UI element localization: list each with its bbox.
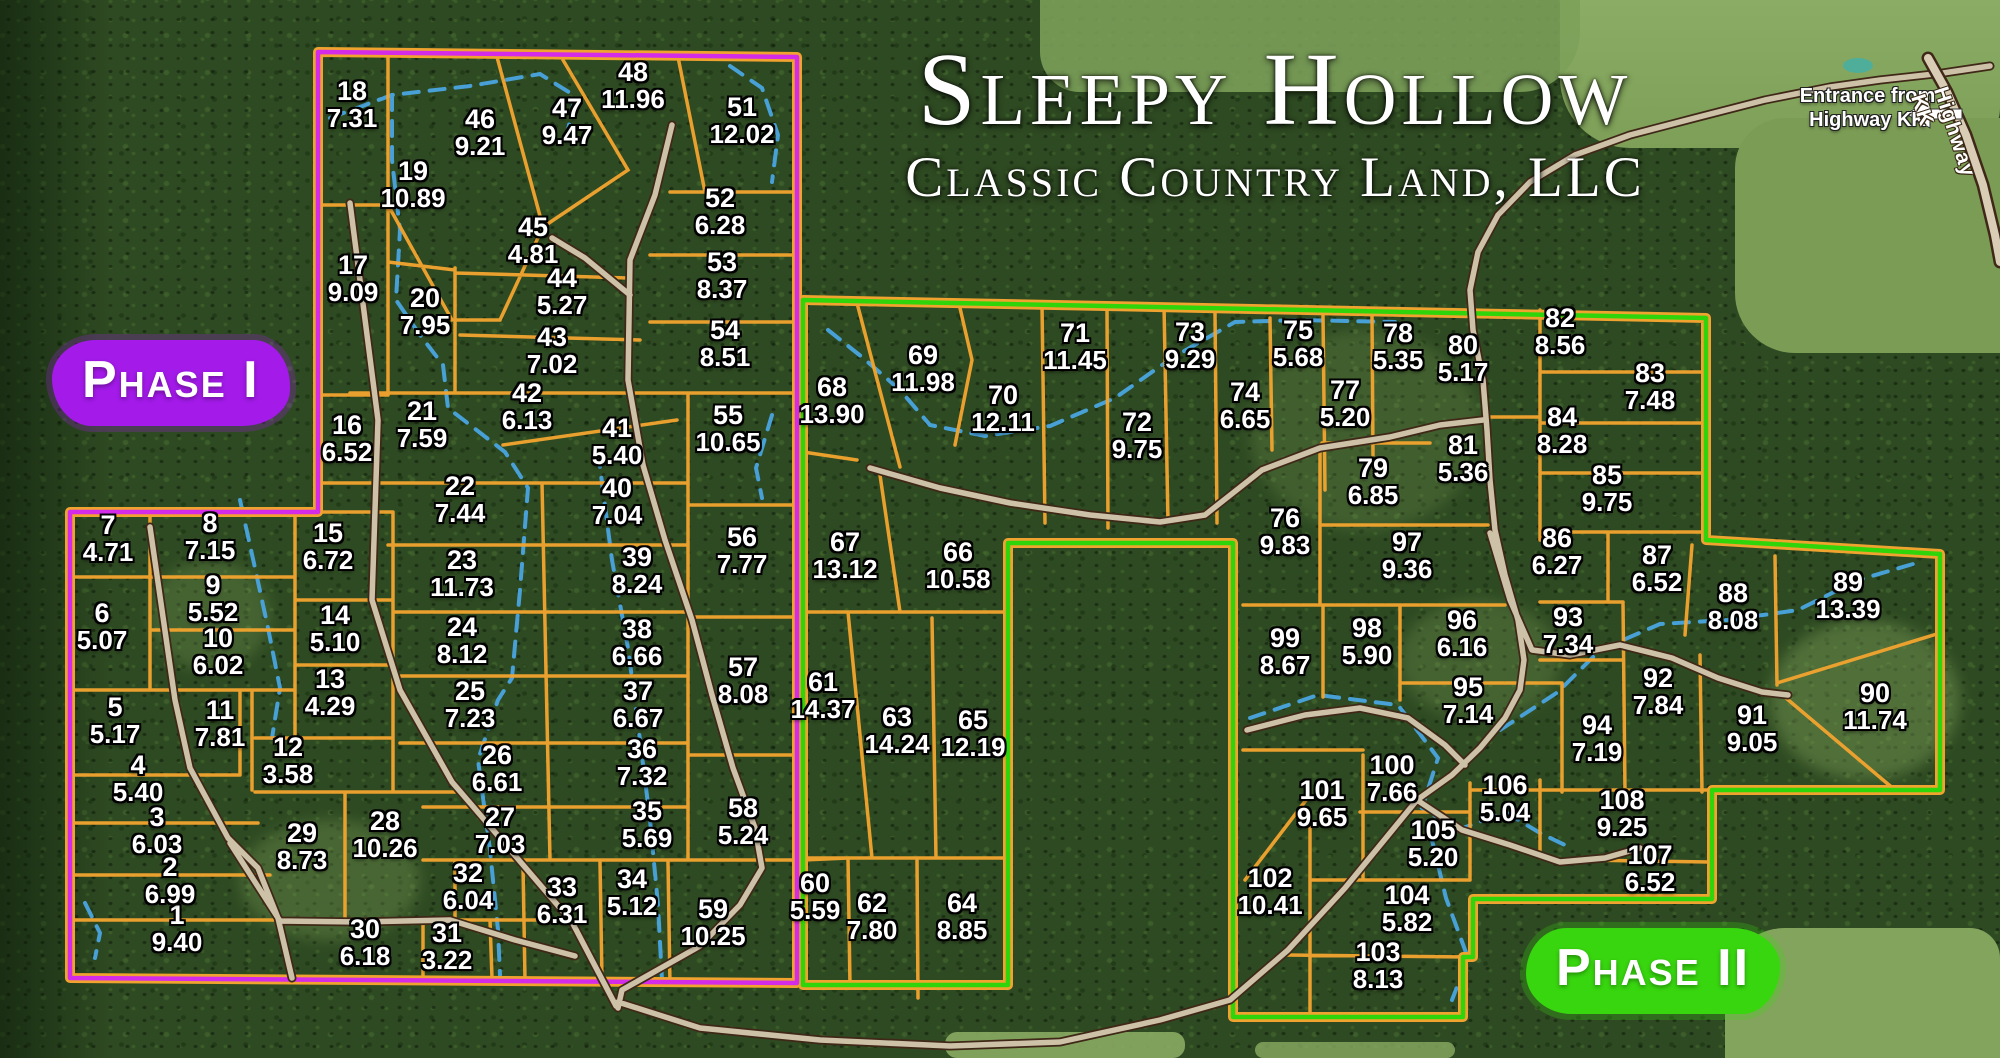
phase1-badge: Phase I: [52, 340, 290, 426]
lot-label-99: 998.67: [1260, 624, 1311, 680]
lot-acres: 11.73: [430, 574, 494, 601]
lot-number: 87: [1632, 541, 1683, 569]
lot-acres: 8.37: [697, 276, 748, 303]
lot-acres: 7.95: [400, 312, 451, 339]
lot-acres: 8.28: [1537, 431, 1588, 458]
lot-label-51: 5112.02: [709, 93, 774, 149]
lot-label-27: 277.03: [475, 803, 526, 859]
stream: [240, 500, 280, 738]
lot-number: 106: [1480, 771, 1531, 799]
lot-acres: 5.40: [113, 779, 164, 806]
lot-number: 24: [437, 613, 488, 641]
lot-number: 47: [542, 94, 593, 122]
lot-number: 92: [1633, 664, 1684, 692]
lot-label-39: 398.24: [612, 543, 663, 599]
lot-number: 61: [790, 668, 855, 696]
lot-number: 33: [537, 873, 588, 901]
lot-label-36: 367.32: [617, 735, 668, 791]
lot-acres: 9.65: [1297, 804, 1348, 831]
lot-number: 73: [1165, 318, 1216, 346]
lot-acres: 7.32: [617, 763, 668, 790]
lot-number: 81: [1438, 431, 1489, 459]
lot-number: 16: [322, 411, 373, 439]
lot-acres: 7.84: [1633, 692, 1684, 719]
lot-acres: 9.09: [328, 279, 379, 306]
lot-label-71: 7111.45: [1043, 319, 1107, 375]
lot-acres: 5.24: [718, 822, 769, 849]
lot-label-66: 6610.58: [925, 538, 990, 594]
lot-acres: 7.34: [1543, 631, 1594, 658]
lot-number: 76: [1260, 504, 1311, 532]
lot-number: 102: [1237, 864, 1302, 892]
lot-acres: 8.51: [700, 344, 751, 371]
lot-label-97: 979.36: [1382, 528, 1433, 584]
lot-label-25: 257.23: [445, 677, 496, 733]
lot-acres: 7.14: [1443, 701, 1494, 728]
lot-acres: 6.52: [322, 439, 373, 466]
lot-label-38: 386.66: [612, 615, 663, 671]
plat-map: 19.4026.9936.0345.4055.1765.0774.7187.15…: [0, 0, 2000, 1058]
phase2-badge: Phase II: [1526, 928, 1780, 1014]
lot-label-85: 859.75: [1582, 461, 1633, 517]
lot-label-47: 479.47: [542, 94, 593, 150]
lot-acres: 14.24: [864, 731, 929, 758]
lot-acres: 10.89: [380, 185, 445, 212]
lot-label-5: 55.17: [90, 693, 141, 749]
lot-label-10: 106.02: [193, 624, 244, 680]
lot-label-9: 95.52: [188, 571, 239, 627]
lot-number: 90: [1843, 679, 1907, 707]
lot-number: 52: [695, 184, 746, 212]
lot-acres: 4.81: [508, 241, 559, 268]
lot-number: 4: [113, 751, 164, 779]
lot-number: 29: [277, 819, 328, 847]
lot-label-80: 805.17: [1438, 331, 1489, 387]
lot-acres: 5.17: [90, 721, 141, 748]
lot-acres: 7.02: [527, 351, 578, 378]
lot-acres: 5.40: [592, 442, 643, 469]
lot-label-7: 74.71: [83, 511, 134, 567]
lot-label-64: 648.85: [937, 889, 988, 945]
lot-number: 65: [940, 706, 1005, 734]
map-title: Sleepy Hollow Classic Country Land, LLC: [860, 38, 1690, 208]
lot-label-43: 437.02: [527, 323, 578, 379]
lot-acres: 4.29: [305, 693, 356, 720]
lot-number: 10: [193, 624, 244, 652]
lot-acres: 7.03: [475, 831, 526, 858]
lot-acres: 5.36: [1438, 459, 1489, 486]
lot-number: 82: [1535, 304, 1586, 332]
lot-label-75: 755.68: [1273, 316, 1324, 372]
lot-acres: 6.52: [1632, 569, 1683, 596]
lot-acres: 5.27: [537, 292, 588, 319]
lot-acres: 7.44: [435, 500, 486, 527]
lot-number: 91: [1727, 701, 1778, 729]
lot-acres: 5.59: [790, 897, 841, 924]
lot-label-42: 426.13: [502, 379, 553, 435]
lot-number: 8: [185, 509, 236, 537]
lot-label-21: 217.59: [397, 397, 448, 453]
lot-acres: 6.16: [1437, 634, 1488, 661]
lot-number: 54: [700, 316, 751, 344]
lot-label-15: 156.72: [303, 519, 354, 575]
lot-acres: 8.85: [937, 917, 988, 944]
lot-acres: 11.45: [1043, 347, 1107, 374]
lot-label-45: 454.81: [508, 213, 559, 269]
lot-label-20: 207.95: [400, 284, 451, 340]
lot-acres: 6.85: [1348, 482, 1399, 509]
lot-number: 99: [1260, 624, 1311, 652]
lot-acres: 11.74: [1843, 707, 1907, 734]
lot-number: 103: [1353, 938, 1404, 966]
lot-number: 9: [188, 571, 239, 599]
lot-number: 83: [1625, 359, 1676, 387]
lot-number: 27: [475, 803, 526, 831]
lot-number: 23: [430, 546, 494, 574]
lot-label-44: 445.27: [537, 264, 588, 320]
lot-number: 18: [327, 77, 378, 105]
lot-acres: 5.82: [1382, 909, 1433, 936]
lot-label-8: 87.15: [185, 509, 236, 565]
entrance-note-line2: Highway KK: [1809, 109, 1926, 131]
lot-acres: 6.99: [145, 881, 196, 908]
lot-acres: 5.20: [1408, 844, 1459, 871]
lot-label-102: 10210.41: [1237, 864, 1302, 920]
lot-acres: 6.28: [695, 212, 746, 239]
lot-acres: 8.56: [1535, 332, 1586, 359]
lot-acres: 5.07: [77, 627, 128, 654]
lot-label-16: 166.52: [322, 411, 373, 467]
lot-label-3: 36.03: [132, 803, 183, 859]
lot-acres: 7.80: [847, 917, 898, 944]
lot-acres: 5.69: [622, 825, 673, 852]
lot-number: 70: [971, 381, 1035, 409]
lot-number: 94: [1572, 711, 1623, 739]
lot-label-79: 796.85: [1348, 454, 1399, 510]
lot-number: 84: [1537, 403, 1588, 431]
lot-label-18: 187.31: [327, 77, 378, 133]
title-line2: Classic Country Land, LLC: [860, 148, 1690, 208]
lot-number: 5: [90, 693, 141, 721]
lot-acres: 6.72: [303, 547, 354, 574]
lot-label-78: 785.35: [1373, 319, 1424, 375]
lot-number: 59: [680, 895, 745, 923]
lot-acres: 7.81: [195, 724, 246, 751]
lot-label-63: 6314.24: [864, 703, 929, 759]
lot-label-59: 5910.25: [680, 895, 745, 951]
lot-acres: 11.96: [601, 86, 665, 113]
lot-number: 107: [1625, 841, 1676, 869]
lot-label-58: 585.24: [718, 794, 769, 850]
lot-number: 57: [718, 653, 769, 681]
lot-number: 93: [1543, 603, 1594, 631]
lot-label-1: 19.40: [152, 901, 203, 957]
lot-label-37: 376.67: [613, 677, 664, 733]
lot-label-35: 355.69: [622, 797, 673, 853]
lot-label-29: 298.73: [277, 819, 328, 875]
lot-acres: 4.71: [83, 539, 134, 566]
lot-acres: 10.65: [695, 429, 760, 456]
lot-acres: 7.48: [1625, 387, 1676, 414]
lot-label-68: 6813.90: [799, 373, 864, 429]
lot-acres: 6.52: [1625, 869, 1676, 896]
lot-acres: 12.11: [971, 409, 1035, 436]
lot-number: 6: [77, 599, 128, 627]
lot-number: 56: [717, 523, 768, 551]
lot-label-62: 627.80: [847, 889, 898, 945]
lot-label-92: 927.84: [1633, 664, 1684, 720]
lot-label-28: 2810.26: [352, 807, 417, 863]
lot-label-26: 266.61: [472, 741, 523, 797]
lot-acres: 3.22: [422, 947, 473, 974]
lot-acres: 5.17: [1438, 359, 1489, 386]
lot-acres: 9.75: [1582, 489, 1633, 516]
lot-acres: 6.31: [537, 901, 588, 928]
lot-acres: 7.59: [397, 425, 448, 452]
lot-label-91: 919.05: [1727, 701, 1778, 757]
title-line1: Sleepy Hollow: [860, 38, 1690, 142]
lot-label-84: 848.28: [1537, 403, 1588, 459]
lot-label-31: 313.22: [422, 919, 473, 975]
lot-number: 74: [1220, 378, 1271, 406]
lot-acres: 8.08: [1708, 607, 1759, 634]
lot-number: 21: [397, 397, 448, 425]
lot-number: 13: [305, 665, 356, 693]
lot-acres: 9.40: [152, 929, 203, 956]
lot-label-86: 866.27: [1532, 524, 1583, 580]
lot-number: 39: [612, 543, 663, 571]
lot-label-95: 957.14: [1443, 673, 1494, 729]
lot-number: 28: [352, 807, 417, 835]
lot-number: 36: [617, 735, 668, 763]
lot-acres: 8.12: [437, 641, 488, 668]
lot-acres: 14.37: [790, 696, 855, 723]
lot-acres: 11.98: [891, 369, 955, 396]
lot-number: 79: [1348, 454, 1399, 482]
lot-number: 105: [1408, 816, 1459, 844]
lot-acres: 8.67: [1260, 652, 1311, 679]
lot-acres: 9.47: [542, 122, 593, 149]
lot-label-33: 336.31: [537, 873, 588, 929]
lot-number: 53: [697, 248, 748, 276]
lot-label-103: 1038.13: [1353, 938, 1404, 994]
lot-acres: 6.04: [443, 887, 494, 914]
lot-label-41: 415.40: [592, 414, 643, 470]
lot-number: 67: [812, 528, 877, 556]
lot-label-61: 6114.37: [790, 668, 855, 724]
lot-label-87: 876.52: [1632, 541, 1683, 597]
lot-label-23: 2311.73: [430, 546, 494, 602]
lot-number: 45: [508, 213, 559, 241]
lot-acres: 7.15: [185, 537, 236, 564]
lot-number: 17: [328, 251, 379, 279]
lot-acres: 13.39: [1815, 596, 1880, 623]
lot-number: 68: [799, 373, 864, 401]
lot-number: 40: [592, 474, 643, 502]
lot-acres: 7.31: [327, 105, 378, 132]
lot-number: 30: [340, 915, 391, 943]
lot-acres: 7.19: [1572, 739, 1623, 766]
lot-label-57: 578.08: [718, 653, 769, 709]
lot-label-70: 7012.11: [971, 381, 1035, 437]
lot-label-17: 179.09: [328, 251, 379, 307]
lot-number: 32: [443, 859, 494, 887]
lot-acres: 6.27: [1532, 552, 1583, 579]
lot-number: 62: [847, 889, 898, 917]
lot-label-76: 769.83: [1260, 504, 1311, 560]
lot-acres: 5.04: [1480, 799, 1531, 826]
lot-acres: 7.04: [592, 502, 643, 529]
lot-label-40: 407.04: [592, 474, 643, 530]
lot-label-11: 117.81: [195, 696, 246, 752]
lot-acres: 9.36: [1382, 556, 1433, 583]
lot-number: 80: [1438, 331, 1489, 359]
lot-number: 63: [864, 703, 929, 731]
lot-label-74: 746.65: [1220, 378, 1271, 434]
lot-number: 14: [310, 601, 361, 629]
lot-label-98: 985.90: [1342, 614, 1393, 670]
lot-acres: 5.90: [1342, 642, 1393, 669]
lot-acres: 6.66: [612, 643, 663, 670]
lot-acres: 9.21: [455, 133, 506, 160]
lot-label-2: 26.99: [145, 853, 196, 909]
lot-label-101: 1019.65: [1297, 776, 1348, 832]
lot-acres: 9.25: [1597, 814, 1648, 841]
lot-number: 46: [455, 105, 506, 133]
lot-acres: 6.02: [193, 652, 244, 679]
lot-number: 89: [1815, 568, 1880, 596]
lot-number: 100: [1367, 751, 1418, 779]
lot-label-107: 1076.52: [1625, 841, 1676, 897]
lot-number: 35: [622, 797, 673, 825]
lot-acres: 8.13: [1353, 966, 1404, 993]
lot-label-94: 947.19: [1572, 711, 1623, 767]
lot-number: 60: [790, 869, 841, 897]
lot-acres: 10.25: [680, 923, 745, 950]
lot-label-73: 739.29: [1165, 318, 1216, 374]
lot-number: 37: [613, 677, 664, 705]
lot-label-30: 306.18: [340, 915, 391, 971]
lot-number: 97: [1382, 528, 1433, 556]
lot-acres: 10.26: [352, 835, 417, 862]
lot-label-67: 6713.12: [812, 528, 877, 584]
lot-acres: 6.03: [132, 831, 183, 858]
lot-number: 96: [1437, 606, 1488, 634]
lot-number: 11: [195, 696, 246, 724]
lot-number: 19: [380, 157, 445, 185]
lot-number: 15: [303, 519, 354, 547]
lot-number: 34: [607, 865, 658, 893]
lot-label-105: 1055.20: [1408, 816, 1459, 872]
lot-acres: 7.23: [445, 705, 496, 732]
lot-label-6: 65.07: [77, 599, 128, 655]
lot-number: 75: [1273, 316, 1324, 344]
lot-acres: 3.58: [263, 761, 314, 788]
lot-number: 31: [422, 919, 473, 947]
lot-number: 12: [263, 733, 314, 761]
lot-number: 42: [502, 379, 553, 407]
lot-acres: 8.08: [718, 681, 769, 708]
lot-number: 85: [1582, 461, 1633, 489]
lot-label-4: 45.40: [113, 751, 164, 807]
lot-acres: 5.20: [1320, 404, 1371, 431]
lot-acres: 6.65: [1220, 406, 1271, 433]
lot-label-52: 526.28: [695, 184, 746, 240]
lot-acres: 12.19: [940, 734, 1005, 761]
lot-label-14: 145.10: [310, 601, 361, 657]
lot-number: 3: [132, 803, 183, 831]
lot-number: 86: [1532, 524, 1583, 552]
lot-number: 71: [1043, 319, 1107, 347]
lot-number: 7: [83, 511, 134, 539]
lot-number: 78: [1373, 319, 1424, 347]
lot-acres: 13.12: [812, 556, 877, 583]
lot-label-19: 1910.89: [380, 157, 445, 213]
lot-label-82: 828.56: [1535, 304, 1586, 360]
lot-number: 95: [1443, 673, 1494, 701]
lot-label-88: 888.08: [1708, 579, 1759, 635]
lot-label-55: 5510.65: [695, 401, 760, 457]
lot-number: 38: [612, 615, 663, 643]
lot-label-108: 1089.25: [1597, 786, 1648, 842]
lot-number: 88: [1708, 579, 1759, 607]
lot-acres: 6.67: [613, 705, 664, 732]
lot-label-32: 326.04: [443, 859, 494, 915]
lot-label-69: 6911.98: [891, 341, 955, 397]
lot-acres: 10.41: [1237, 892, 1302, 919]
lot-acres: 9.29: [1165, 346, 1216, 373]
stream: [85, 903, 100, 958]
lot-label-13: 134.29: [305, 665, 356, 721]
lot-label-93: 937.34: [1543, 603, 1594, 659]
lot-label-46: 469.21: [455, 105, 506, 161]
lot-number: 69: [891, 341, 955, 369]
lot-label-56: 567.77: [717, 523, 768, 579]
lot-label-90: 9011.74: [1843, 679, 1907, 735]
lot-label-81: 815.36: [1438, 431, 1489, 487]
lot-acres: 7.66: [1367, 779, 1418, 806]
lot-number: 25: [445, 677, 496, 705]
lot-label-53: 538.37: [697, 248, 748, 304]
lot-acres: 5.12: [607, 893, 658, 920]
lot-acres: 5.68: [1273, 344, 1324, 371]
lot-number: 101: [1297, 776, 1348, 804]
lot-label-48: 4811.96: [601, 58, 665, 114]
lot-label-12: 123.58: [263, 733, 314, 789]
lot-acres: 5.10: [310, 629, 361, 656]
lot-label-34: 345.12: [607, 865, 658, 921]
lot-acres: 6.18: [340, 943, 391, 970]
lot-acres: 9.83: [1260, 532, 1311, 559]
lot-number: 108: [1597, 786, 1648, 814]
lot-number: 51: [709, 93, 774, 121]
lot-acres: 10.58: [925, 566, 990, 593]
lot-label-100: 1007.66: [1367, 751, 1418, 807]
lot-acres: 8.24: [612, 571, 663, 598]
lot-label-24: 248.12: [437, 613, 488, 669]
lot-acres: 5.35: [1373, 347, 1424, 374]
lot-label-54: 548.51: [700, 316, 751, 372]
lot-label-96: 966.16: [1437, 606, 1488, 662]
lot-number: 64: [937, 889, 988, 917]
lot-number: 20: [400, 284, 451, 312]
lot-number: 22: [435, 472, 486, 500]
lot-acres: 9.75: [1112, 436, 1163, 463]
lot-number: 98: [1342, 614, 1393, 642]
lot-label-77: 775.20: [1320, 376, 1371, 432]
lot-number: 104: [1382, 881, 1433, 909]
lot-acres: 8.73: [277, 847, 328, 874]
